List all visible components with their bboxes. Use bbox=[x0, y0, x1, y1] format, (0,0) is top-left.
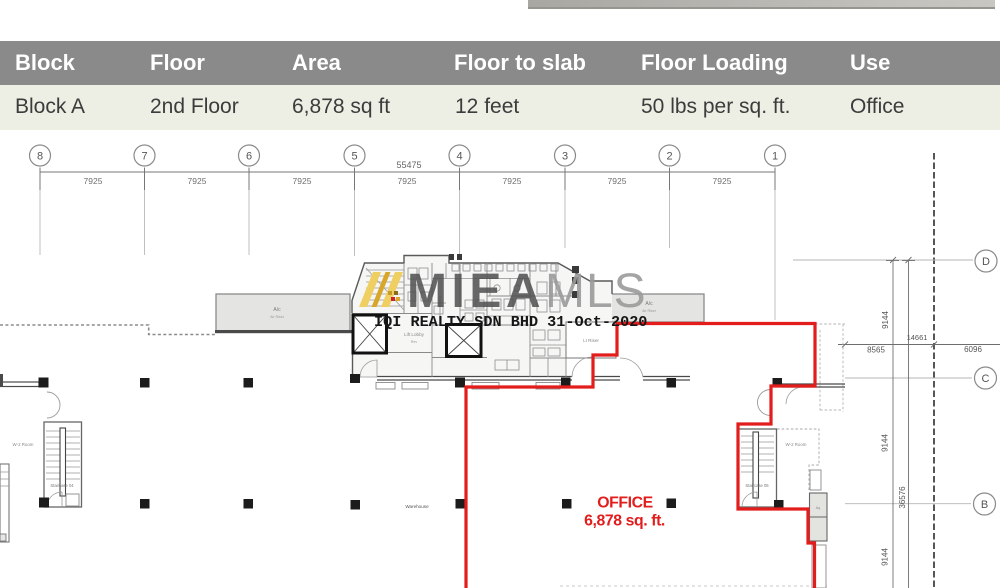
svg-text:4: 4 bbox=[456, 151, 462, 163]
svg-text:6,878 sq. ft.: 6,878 sq. ft. bbox=[584, 513, 665, 530]
svg-text:9144: 9144 bbox=[881, 548, 890, 566]
svg-text:Warehouse: Warehouse bbox=[405, 504, 429, 509]
svg-text:9144: 9144 bbox=[881, 311, 890, 329]
svg-text:7925: 7925 bbox=[503, 176, 522, 186]
svg-text:14661: 14661 bbox=[907, 333, 928, 342]
svg-text:IQI REALTY SDN BHD 31-Oct-2020: IQI REALTY SDN BHD 31-Oct-2020 bbox=[374, 313, 647, 331]
svg-text:3: 3 bbox=[562, 151, 568, 163]
svg-text:Rev: Rev bbox=[411, 340, 418, 344]
svg-text:8565: 8565 bbox=[867, 346, 885, 355]
svg-text:6096: 6096 bbox=[964, 345, 982, 354]
svg-text:2: 2 bbox=[666, 151, 672, 163]
svg-text:Lift Lobby: Lift Lobby bbox=[404, 332, 425, 337]
svg-text:Aq: Aq bbox=[816, 506, 820, 510]
svg-text:36576: 36576 bbox=[898, 486, 907, 509]
svg-text:Staircase 04: Staircase 04 bbox=[50, 483, 74, 488]
svg-text:W-2 Room: W-2 Room bbox=[13, 442, 34, 447]
svg-text:W-2 Room: W-2 Room bbox=[786, 442, 807, 447]
svg-text:55475: 55475 bbox=[396, 160, 421, 170]
svg-text:MIEA: MIEA bbox=[407, 265, 545, 318]
svg-text:8: 8 bbox=[37, 151, 43, 163]
svg-text:D: D bbox=[982, 256, 990, 268]
svg-text:6: 6 bbox=[246, 151, 252, 163]
svg-text:1: 1 bbox=[772, 151, 778, 163]
svg-text:9144: 9144 bbox=[881, 434, 890, 452]
svg-text:OFFICE: OFFICE bbox=[597, 495, 653, 512]
svg-text:7925: 7925 bbox=[293, 176, 312, 186]
svg-text:Lt Riser: Lt Riser bbox=[583, 338, 599, 343]
svg-text:7925: 7925 bbox=[608, 176, 627, 186]
svg-text:7: 7 bbox=[141, 151, 147, 163]
svg-text:7925: 7925 bbox=[188, 176, 207, 186]
svg-text:7925: 7925 bbox=[398, 176, 417, 186]
svg-text:Staircase 05: Staircase 05 bbox=[745, 483, 769, 488]
svg-text:B: B bbox=[981, 499, 988, 511]
svg-text:C: C bbox=[982, 373, 990, 385]
svg-text:7925: 7925 bbox=[713, 176, 732, 186]
svg-text:7925: 7925 bbox=[84, 176, 103, 186]
svg-text:A/c: A/c bbox=[273, 307, 281, 313]
svg-text:5: 5 bbox=[351, 151, 357, 163]
svg-text:Air Riser: Air Riser bbox=[270, 315, 285, 319]
svg-text:MLS: MLS bbox=[545, 265, 647, 318]
